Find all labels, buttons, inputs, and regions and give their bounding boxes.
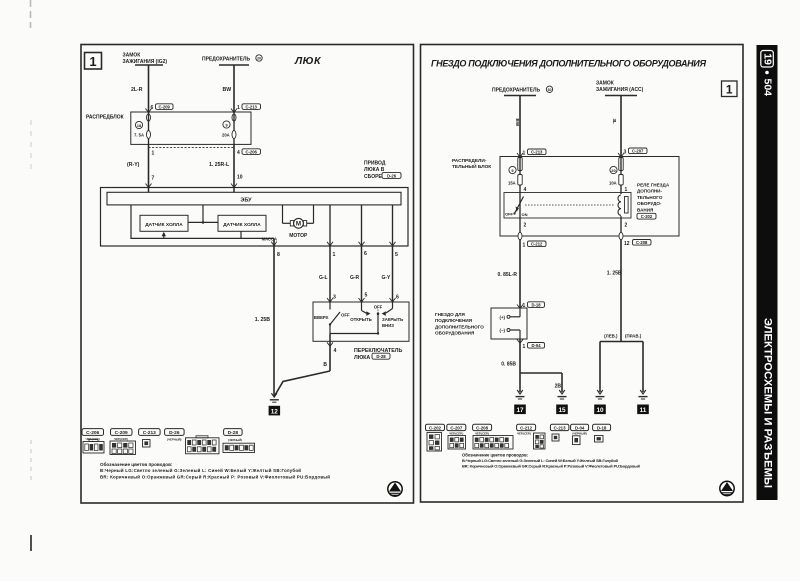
svg-text:ЛЮКА В: ЛЮКА В	[364, 167, 385, 173]
svg-text:ЗАМОК: ЗАМОК	[123, 53, 142, 59]
svg-text:2: 2	[524, 222, 527, 228]
svg-text:(−): (−)	[500, 328, 506, 333]
svg-text:ЗАЖИГАНИЯ (ACC): ЗАЖИГАНИЯ (ACC)	[596, 87, 644, 93]
svg-text:G-R: G-R	[350, 275, 360, 281]
svg-text:15A: 15A	[508, 181, 516, 186]
svg-text:РЕЛЕ ГНЕЗДА: РЕЛЕ ГНЕЗДА	[637, 182, 670, 187]
svg-text:9: 9	[511, 168, 514, 173]
svg-text:РАСПРЕДЕЛИ-: РАСПРЕДЕЛИ-	[452, 158, 487, 164]
svg-text:2L-R: 2L-R	[131, 87, 143, 93]
svg-text:1: 1	[152, 151, 155, 157]
svg-text:1: 1	[625, 187, 628, 193]
svg-text:СБОРЕ: СБОРЕ	[364, 174, 382, 180]
svg-text:4: 4	[237, 150, 240, 156]
svg-text:6: 6	[396, 295, 399, 301]
svg-text:ОБОРУДО-: ОБОРУДО-	[637, 201, 662, 206]
svg-text:D-04: D-04	[575, 426, 585, 431]
svg-text:D-28: D-28	[376, 354, 386, 359]
svg-text:Обозначение цветов проводов:: Обозначение цветов проводов:	[462, 453, 528, 458]
svg-text:ЧЕР.(СЕР.): ЧЕР.(СЕР.)	[449, 431, 463, 435]
svg-text:ПОДКЛЮЧЕНИЯ: ПОДКЛЮЧЕНИЯ	[435, 318, 472, 323]
svg-text:20A: 20A	[222, 133, 230, 138]
svg-text:D-26: D-26	[387, 173, 397, 178]
svg-text:(ЛЕВ.): (ЛЕВ.)	[604, 334, 618, 339]
svg-text:C-202: C-202	[429, 426, 442, 431]
svg-text:OFF: OFF	[374, 305, 383, 310]
svg-text:C-213: C-213	[245, 104, 257, 109]
svg-text:9: 9	[225, 122, 228, 127]
svg-text:C-209: C-209	[115, 430, 128, 436]
svg-text:ЭЛЕКТРОСХЕМЫ И РАЗЪЕМЫ: ЭЛЕКТРОСХЕМЫ И РАЗЪЕМЫ	[762, 318, 774, 488]
svg-text:РАСПРЕДБЛОК: РАСПРЕДБЛОК	[86, 115, 125, 121]
svg-text:OFF: OFF	[505, 211, 514, 216]
svg-text:3: 3	[624, 149, 627, 155]
svg-text:ОБОРУДОВАНИЯ: ОБОРУДОВАНИЯ	[435, 331, 474, 336]
svg-text:D-04: D-04	[531, 343, 541, 348]
svg-text:ДАТЧИК ХОЛЛА: ДАТЧИК ХОЛЛА	[145, 222, 183, 228]
svg-text:3: 3	[333, 295, 336, 301]
svg-text:ГНЕЗДО ДЛЯ: ГНЕЗДО ДЛЯ	[435, 312, 465, 317]
svg-text:B:Черный LG:Светло зеленый G:З: B:Черный LG:Светло зеленый G:Зеленый L: …	[100, 468, 301, 473]
svg-text:B:Черный LG:Светло зеленый G:З: B:Черный LG:Светло зеленый G:Зеленый L: …	[462, 458, 619, 463]
svg-text:OFF: OFF	[341, 313, 350, 318]
svg-text:ГНЕЗДО ПОДКЛЮЧЕНИЯ ДОПОЛНИТЕЛЬ: ГНЕЗДО ПОДКЛЮЧЕНИЯ ДОПОЛНИТЕЛЬНОГО ОБОРУ…	[431, 59, 706, 69]
svg-text:(ЧЕРНЫЙ): (ЧЕРНЫЙ)	[572, 431, 586, 435]
svg-text:ЭБУ: ЭБУ	[240, 197, 252, 203]
svg-text:C-208: C-208	[636, 240, 648, 245]
svg-text:3L: 3L	[612, 119, 617, 125]
svg-text:10: 10	[596, 407, 604, 414]
svg-text:G-Y: G-Y	[382, 275, 392, 281]
svg-text:Обозначение цветов проводов:: Обозначение цветов проводов:	[100, 461, 173, 467]
svg-text:ПРЕДОХРАНИТЕЛЬ: ПРЕДОХРАНИТЕЛЬ	[202, 56, 250, 62]
svg-text:ЗАЖИГАНИЯ (IG2): ЗАЖИГАНИЯ (IG2)	[123, 59, 168, 65]
svg-text:C-207: C-207	[450, 426, 463, 431]
svg-text:D-18: D-18	[597, 426, 607, 431]
svg-text:ДОПОЛНИ-: ДОПОЛНИ-	[637, 189, 662, 194]
svg-text:D-18: D-18	[531, 302, 541, 307]
svg-text:17: 17	[516, 407, 524, 414]
svg-text:BW: BW	[515, 119, 520, 127]
svg-text:BR: Коричневый O:Оранжевый GR:: BR: Коричневый O:Оранжевый GR:Серый R:Кр…	[462, 464, 641, 469]
svg-text:C-212: C-212	[520, 426, 533, 431]
svg-text:6: 6	[364, 251, 367, 257]
svg-text:0. 85B: 0. 85B	[501, 362, 516, 368]
svg-text:ЧЕР.(СЕР.): ЧЕР.(СЕР.)	[517, 431, 531, 435]
svg-text:BW: BW	[223, 87, 232, 93]
svg-text:ПРЕДОХРАНИТЕЛЬ: ПРЕДОХРАНИТЕЛЬ	[492, 88, 540, 94]
svg-text:504: 504	[762, 79, 774, 97]
svg-text:ТЕЛЬНОГО: ТЕЛЬНОГО	[637, 195, 663, 200]
svg-text:C-208: C-208	[476, 426, 489, 431]
svg-text:МОТОР: МОТОР	[289, 233, 308, 239]
svg-text:1: 1	[237, 105, 240, 111]
svg-text:M: M	[296, 221, 301, 228]
svg-text:ЛЮКА: ЛЮКА	[354, 355, 370, 361]
svg-text:C-207: C-207	[632, 149, 644, 154]
svg-text:(ЧЕРНЫЙ): (ЧЕРНЫЙ)	[228, 438, 242, 442]
svg-text:BR: Коричневый O:Оранжевый GR:: BR: Коричневый O:Оранжевый GR:Серый R:Кр…	[100, 474, 330, 479]
svg-text:0. 85L-R: 0. 85L-R	[498, 272, 518, 278]
svg-text:ДОПОЛНИТЕЛЬНОГО: ДОПОЛНИТЕЛЬНОГО	[435, 324, 484, 329]
svg-text:ЗАКРЫТЬ: ЗАКРЫТЬ	[382, 317, 403, 322]
svg-text:D-28: D-28	[228, 430, 239, 436]
svg-text:G-L: G-L	[319, 275, 328, 281]
svg-text:C-213: C-213	[554, 426, 567, 431]
svg-text:(ПРАВ.): (ПРАВ.)	[625, 334, 642, 339]
svg-text:C-212: C-212	[531, 242, 543, 247]
svg-text:15: 15	[558, 407, 566, 414]
svg-text:10: 10	[237, 175, 243, 181]
svg-text:8: 8	[277, 252, 280, 258]
svg-text:1: 1	[726, 83, 733, 97]
svg-text:2B: 2B	[555, 384, 562, 390]
svg-text:20: 20	[257, 57, 261, 61]
svg-text:18: 18	[137, 123, 142, 128]
svg-text:ОТКРЫТЬ: ОТКРЫТЬ	[350, 317, 371, 322]
svg-text:1: 1	[523, 344, 526, 350]
svg-text:ВАНИЯ: ВАНИЯ	[637, 208, 653, 213]
svg-text:ЗАМОК: ЗАМОК	[596, 81, 615, 87]
svg-text:4: 4	[334, 348, 337, 354]
svg-text:C-206: C-206	[86, 430, 99, 436]
svg-text:4: 4	[524, 187, 527, 193]
svg-text:1: 1	[333, 252, 336, 258]
svg-text:C-202: C-202	[641, 214, 653, 219]
svg-text:11: 11	[640, 407, 647, 414]
svg-text:5: 5	[395, 252, 398, 258]
svg-text:B: B	[323, 362, 327, 368]
svg-text:C-209: C-209	[158, 104, 170, 109]
svg-text:7. 5A: 7. 5A	[134, 133, 144, 138]
svg-text:ВВЕРХ: ВВЕРХ	[314, 315, 329, 320]
svg-text:ЧЕР.(СЕР.): ЧЕР.(СЕР.)	[475, 431, 489, 435]
svg-text:2: 2	[625, 222, 628, 228]
svg-text:C-213: C-213	[143, 430, 156, 436]
svg-text:1. 25B: 1. 25B	[255, 317, 271, 323]
svg-text:(+): (+)	[500, 315, 506, 320]
svg-text:10A: 10A	[609, 181, 617, 186]
svg-text:(R-Y): (R-Y)	[127, 162, 140, 168]
svg-text:7: 7	[152, 176, 155, 182]
svg-text:C-206: C-206	[245, 149, 257, 154]
svg-text:19: 19	[762, 53, 774, 65]
svg-text:C-213: C-213	[531, 150, 543, 155]
svg-text:1: 1	[523, 242, 526, 248]
svg-text:ЧЕР.(СЕР.): ЧЕР.(СЕР.)	[114, 437, 128, 441]
svg-text:ПРИВОД: ПРИВОД	[364, 161, 386, 167]
svg-text:ВНИЗ: ВНИЗ	[382, 323, 394, 328]
svg-text:1: 1	[89, 54, 96, 69]
svg-text:1. 25R-L: 1. 25R-L	[209, 162, 230, 168]
svg-text:(ЧЕРНЫЙ): (ЧЕРНЫЙ)	[167, 437, 181, 441]
svg-text:ДАТЧИК ХОЛЛА: ДАТЧИК ХОЛЛА	[223, 222, 261, 228]
svg-text:D-26: D-26	[169, 430, 180, 436]
svg-text:5: 5	[365, 293, 368, 299]
svg-text:12: 12	[624, 241, 630, 247]
svg-text:1. 25B: 1. 25B	[607, 271, 622, 277]
svg-text:20: 20	[611, 168, 616, 173]
svg-text:ON: ON	[522, 212, 528, 217]
svg-text:ЛЮК: ЛЮК	[294, 55, 322, 67]
svg-text:30: 30	[548, 88, 552, 92]
svg-text:12: 12	[271, 408, 279, 415]
